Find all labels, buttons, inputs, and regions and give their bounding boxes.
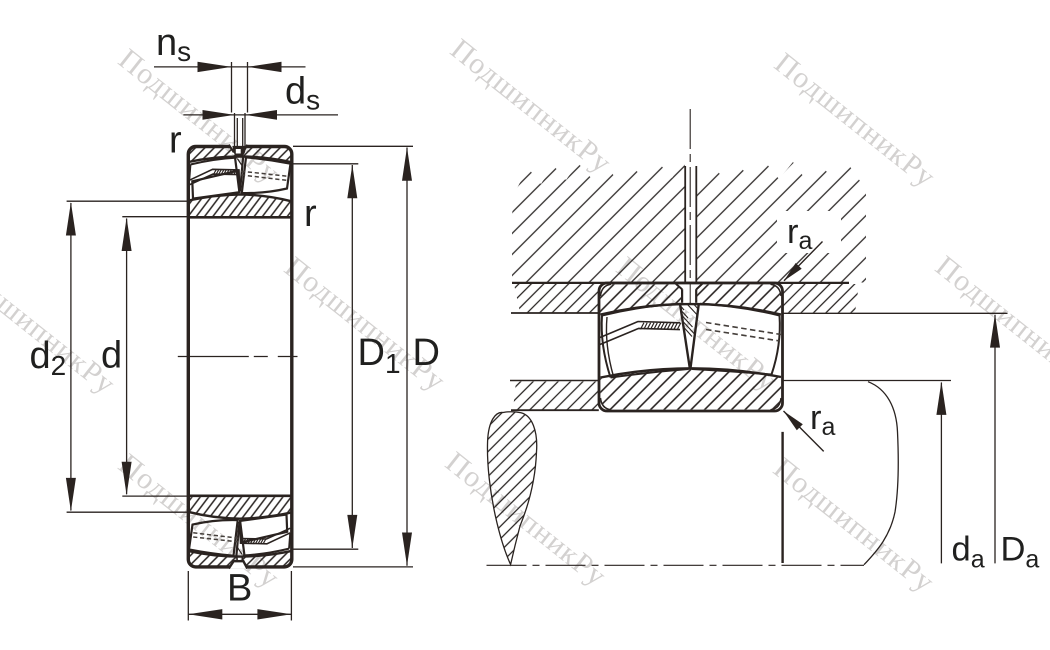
svg-text:r: r xyxy=(304,193,317,235)
svg-text:r: r xyxy=(169,119,182,161)
svg-text:d: d xyxy=(101,335,122,377)
svg-text:D: D xyxy=(413,332,440,374)
svg-text:B: B xyxy=(227,568,252,610)
